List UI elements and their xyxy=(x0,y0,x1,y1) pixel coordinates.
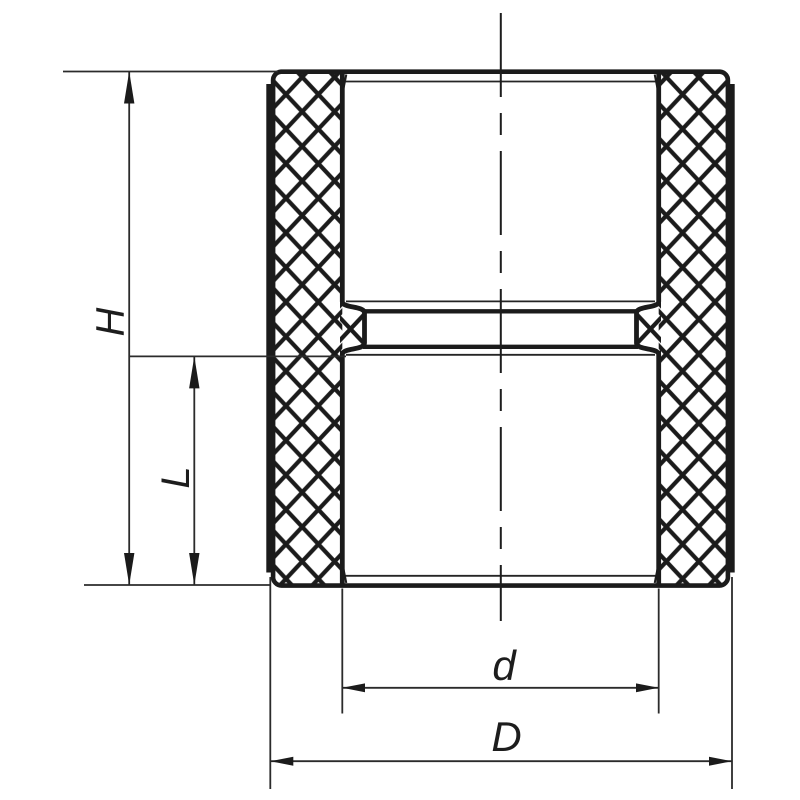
svg-text:L: L xyxy=(154,466,198,488)
svg-text:d: d xyxy=(492,642,517,689)
svg-text:H: H xyxy=(88,307,132,336)
svg-text:D: D xyxy=(491,713,521,760)
